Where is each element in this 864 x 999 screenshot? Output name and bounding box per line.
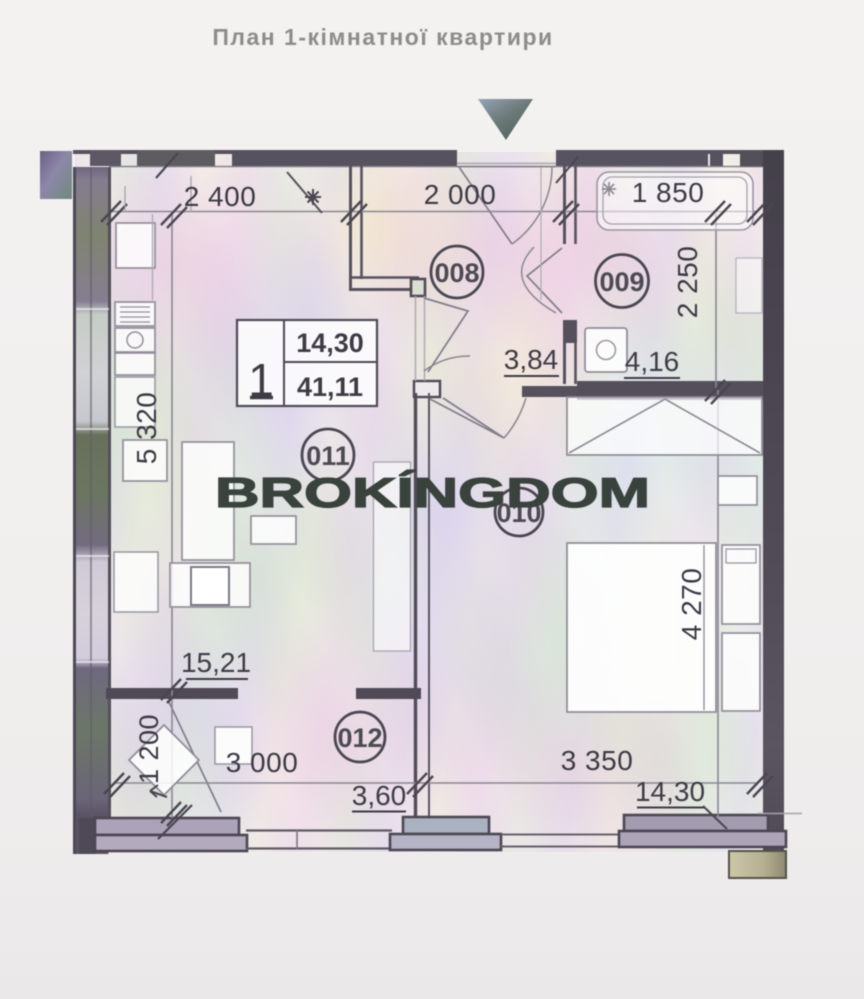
- svg-text:009: 009: [599, 267, 644, 297]
- svg-text:14,30: 14,30: [296, 328, 364, 358]
- svg-text:41,11: 41,11: [297, 372, 363, 402]
- svg-text:15,21: 15,21: [181, 647, 251, 678]
- svg-text:2 250: 2 250: [672, 246, 703, 319]
- svg-text:2 400: 2 400: [184, 181, 257, 212]
- svg-text:012: 012: [337, 723, 382, 753]
- svg-text:3,84: 3,84: [504, 344, 559, 375]
- svg-text:14,30: 14,30: [635, 776, 705, 807]
- svg-text:4 270: 4 270: [676, 568, 707, 641]
- svg-text:3 000: 3 000: [226, 747, 299, 778]
- svg-text:3 350: 3 350: [561, 745, 634, 776]
- svg-text:BROKÍNGDOM: BROKÍNGDOM: [215, 469, 650, 516]
- svg-text:3,60: 3,60: [352, 780, 407, 811]
- svg-text:008: 008: [434, 258, 479, 288]
- svg-text:011: 011: [306, 441, 350, 471]
- svg-text:4,16: 4,16: [625, 346, 680, 377]
- svg-text:2 000: 2 000: [424, 179, 497, 210]
- svg-text:1 200: 1 200: [134, 714, 164, 784]
- svg-text:5 320: 5 320: [131, 392, 162, 465]
- svg-text:1 850: 1 850: [632, 177, 705, 208]
- svg-text:План 1-кімнатної квартири: План 1-кімнатної квартири: [212, 24, 553, 50]
